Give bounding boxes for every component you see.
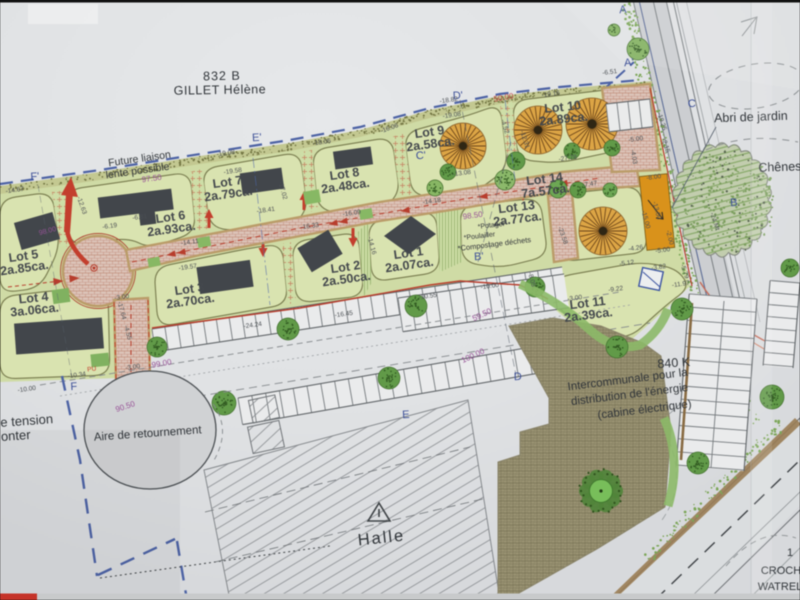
svg-text:D: D [514,371,523,383]
svg-text:832 B: 832 B [203,69,241,84]
svg-text:C: C [688,98,697,110]
svg-text:GILLET Hélène: GILLET Hélène [174,82,267,98]
svg-text:E': E' [252,132,262,144]
svg-text:B: B [730,197,738,209]
svg-text:E: E [402,409,410,421]
svg-text:1: 1 [787,547,793,559]
svg-text:F': F' [30,171,39,183]
svg-text:B': B' [474,251,484,263]
svg-text:F: F [70,381,78,393]
svg-text:C': C' [416,150,427,163]
svg-text:PU: PU [87,365,97,373]
